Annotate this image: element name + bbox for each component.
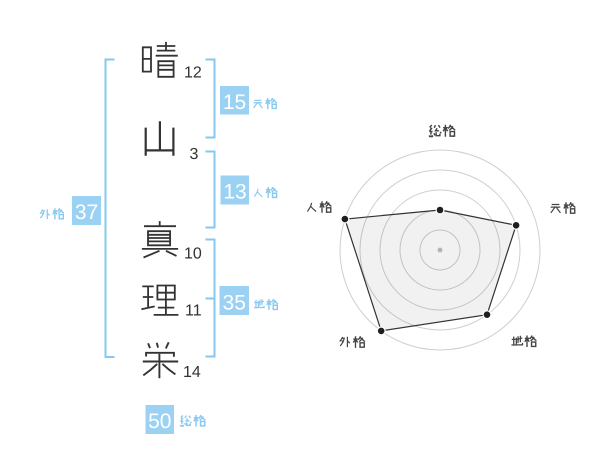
svg-text:13: 13 [223,181,246,204]
svg-text:15: 15 [223,91,246,114]
svg-text:11: 11 [185,303,202,320]
svg-text:35: 35 [223,291,246,314]
svg-text:12: 12 [184,65,202,82]
svg-text:10: 10 [184,245,202,262]
svg-text:3: 3 [190,146,199,163]
svg-text:50: 50 [148,410,171,433]
svg-text:37: 37 [75,201,98,224]
svg-text:14: 14 [183,364,201,381]
